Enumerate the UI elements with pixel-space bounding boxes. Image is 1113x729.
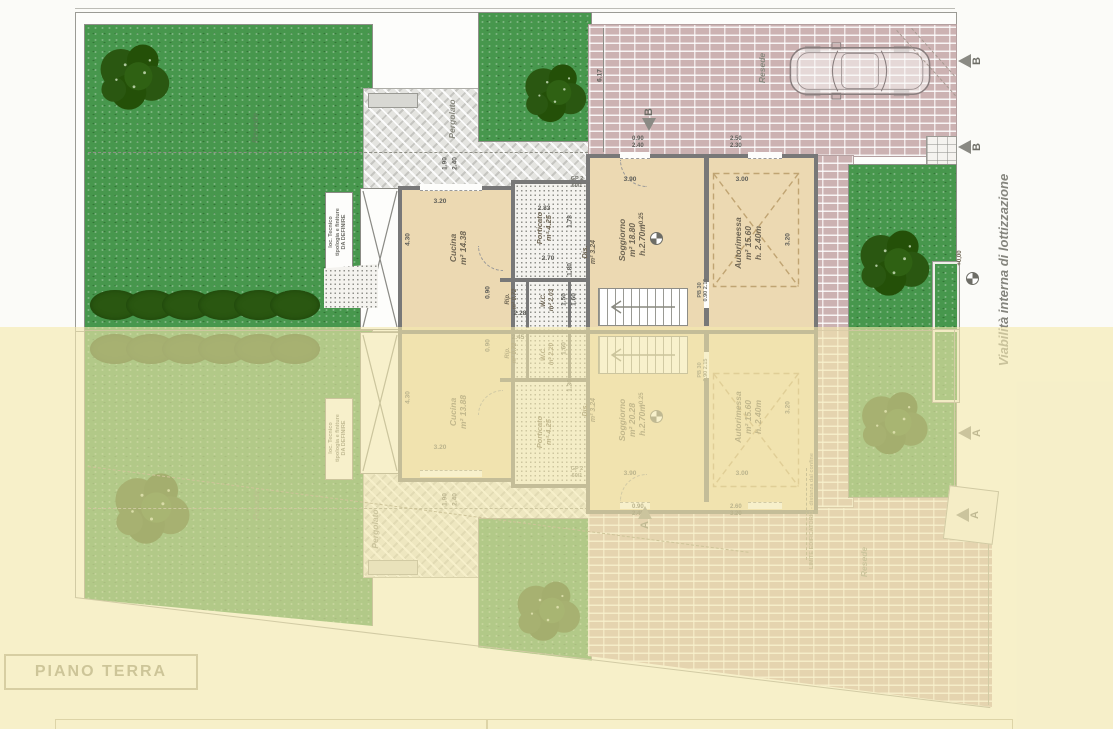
tree-icon — [508, 570, 588, 654]
room-area: m² 2.03 — [548, 289, 556, 311]
room-area: m² 20.28 — [627, 403, 637, 437]
dimension: 2.83 — [532, 205, 556, 212]
door-size: 60/1 — [572, 473, 583, 479]
room-area: m² 4.25 — [545, 419, 554, 445]
dimension: 1.80 — [567, 258, 574, 282]
technical-room-bottom — [360, 332, 400, 474]
pergola-beam — [368, 93, 418, 108]
section-a-marker-icon: A — [958, 426, 981, 440]
room-area: m² 3.24 — [590, 398, 598, 422]
room-label-autorimessa-bottom: Autorimessa m² 15.60 h. 2.40m — [730, 377, 766, 457]
level-zero-benchmark-icon — [966, 272, 979, 285]
section-a-label: A — [639, 521, 651, 529]
dimension-line — [603, 28, 604, 152]
section-arrow-up-icon — [638, 506, 652, 519]
tree-icon — [516, 52, 594, 136]
hedge-row — [90, 290, 320, 320]
dimension: 3.20 — [785, 396, 792, 420]
setback-dashed-line — [88, 152, 588, 153]
dimension-pair: 2.60 3.20 — [730, 504, 742, 518]
room-name: Rip. — [505, 293, 512, 304]
room-area: m² 18.80 — [627, 223, 637, 257]
room-name: Autorimessa — [733, 391, 743, 443]
room-label-cucina-bottom: Cucina m² 13.88 — [442, 372, 474, 452]
level-label: +0.25 — [637, 385, 649, 415]
setback-dashed-line-bottom — [88, 508, 588, 509]
lot-boundary-left-bottom — [75, 330, 76, 597]
viability-label: Viabilità interna di lottizzazione — [995, 80, 1013, 460]
resede-lawn-label: Resede — [245, 98, 265, 158]
lot-boundary-right-bottom — [954, 330, 955, 492]
room-area: m² 0.72 — [512, 289, 519, 310]
section-b-label: B — [971, 57, 983, 65]
dimension: 1.90 — [442, 488, 449, 512]
room-label-cucina: Cucina m² 14.38 — [442, 208, 474, 288]
room-name: Autorimessa — [733, 217, 743, 269]
dimension: 2.40 — [452, 152, 459, 176]
room-label-wc-bottom: W.C. m² 2.20 — [538, 314, 558, 394]
stairs — [598, 288, 688, 326]
room-name: Soggiorno — [617, 399, 627, 442]
bush-icon — [270, 334, 320, 364]
door-tag-pb-bottom: PB 30 0.90 2.15 — [695, 335, 711, 405]
dimension: 2.40 — [632, 143, 644, 150]
room-name: W.C. — [540, 293, 548, 307]
dimension: 3.20 — [428, 198, 452, 205]
room-area: m² 13.88 — [458, 395, 468, 429]
x-brace-icon — [361, 333, 399, 473]
section-a-marker-icon: A — [956, 508, 979, 522]
tree-icon — [88, 34, 180, 122]
dimension: 2.60 — [730, 504, 742, 511]
drawing-sheet: Resede Pergolato Resede 6.17 B loc. Tecn… — [0, 0, 1113, 729]
dimension: 3.20 — [428, 444, 452, 451]
dimension: 4.30 — [405, 386, 412, 410]
dimension: 3.00 — [730, 176, 754, 183]
room-area: m² 0.72 — [512, 343, 519, 364]
dimension: 6.17 — [597, 64, 604, 88]
door-tag-gp: GP 2 60/1 — [564, 176, 590, 189]
dimension: 2.50 — [730, 136, 742, 143]
hedge-row-bottom — [90, 334, 320, 364]
dimension: 0.90 — [485, 334, 492, 358]
level-benchmark-icon — [650, 410, 663, 423]
dimension: 0.90 — [485, 281, 492, 305]
section-a-marker-icon: A — [638, 506, 652, 531]
technical-room — [360, 188, 400, 330]
dimension: 3.90 — [618, 470, 642, 477]
level-benchmark-icon — [650, 232, 663, 245]
dimension: 2.70 — [536, 255, 560, 262]
door-code: GP 2 — [571, 176, 583, 182]
room-label-dis-bottom: Dis. m² 3.24 — [578, 370, 602, 450]
room-height: h. 2.40m — [753, 226, 763, 260]
pergolato-bottom-label: Pergolato — [364, 489, 386, 569]
window-opening — [620, 152, 650, 159]
dimension: 2.45 — [506, 334, 530, 341]
plan-title-box: PIANO TERRA — [4, 654, 198, 690]
lot-boundary-right-lower — [988, 542, 989, 705]
room-label-porticato-bottom: Porticato m² 4.25 — [529, 392, 561, 472]
door-size: 0.90 2.15 — [703, 279, 709, 302]
window-opening — [420, 184, 482, 191]
dimension: 2.40 — [452, 488, 459, 512]
plan-title: PIANO TERRA — [35, 663, 167, 681]
stair-direction-arrow-icon — [603, 345, 683, 365]
dimension: 0.90 — [632, 136, 644, 143]
dimension: 1.90 — [442, 152, 449, 176]
door-size: 60/1 — [572, 183, 583, 189]
loc-line: DA DEFINIRE — [341, 421, 347, 456]
room-area: m² 15.60 — [743, 400, 753, 434]
tree-icon — [852, 382, 936, 466]
dimension: 3.90 — [618, 176, 642, 183]
interior-wall — [568, 332, 571, 378]
dimension: 1.78 — [567, 210, 574, 234]
section-arrow-left-icon — [958, 54, 971, 68]
window-opening — [420, 470, 482, 477]
dimension-pair: 0.90 2.40 — [632, 136, 644, 150]
dimension: 1.60 — [561, 337, 568, 361]
dimension: 4.30 — [405, 228, 412, 252]
dimension: 1.60 — [571, 288, 578, 312]
door-size: 0.90 2.15 — [703, 359, 709, 382]
door-tag-gp-bottom: GP 2 60/1 — [564, 466, 590, 479]
dimension-pair: 2.50 2.30 — [730, 136, 742, 150]
room-area: m² 2.20 — [548, 343, 556, 365]
resede-driveway-label: Resede — [752, 38, 772, 98]
loc-tecnico-label: loc. Tecnico tipologia e finiture DA DEF… — [328, 192, 348, 272]
room-area: m² 15.60 — [743, 226, 753, 260]
section-arrow-left-icon — [958, 140, 971, 154]
room-area: m² 3.24 — [590, 240, 598, 264]
section-b-marker-icon: B — [642, 106, 656, 131]
car-icon — [786, 42, 934, 100]
next-sheet-row — [487, 719, 1013, 729]
dimension: 1.50 — [561, 288, 568, 312]
limite-edificatorio-label: LIMITE EDIFICATORIO - distanza dal confi… — [805, 441, 819, 581]
room-height: h. 2.40m — [753, 400, 763, 434]
room-name: Dis. — [582, 404, 590, 417]
section-b-marker-icon: B — [958, 140, 981, 154]
level-label: +0.25 — [637, 205, 649, 235]
interior-wall — [526, 282, 529, 328]
room-name: Soggiorno — [617, 219, 627, 262]
section-b-label: B — [971, 143, 983, 151]
pergolato-label: Pergolato — [441, 79, 463, 159]
dimension: 3.20 — [785, 228, 792, 252]
loc-line: DA DEFINIRE — [341, 215, 347, 250]
section-a-label: A — [969, 511, 981, 519]
tree-icon — [104, 462, 199, 557]
dimension: 3.20 — [730, 511, 742, 518]
room-name: Cucina — [448, 234, 458, 262]
window-opening — [748, 152, 782, 159]
room-label-dis: Dis. m² 3.24 — [578, 212, 602, 292]
room-label-rip-bottom: Rip. m² 0.72 — [503, 313, 521, 393]
dimension: 2.30 — [730, 143, 742, 150]
loc-tecnico-bottom-label: loc. Tecnico tipologia e finiture DA DEF… — [328, 398, 348, 478]
room-area: m² 14.38 — [458, 231, 468, 265]
dimension: 1.30 — [567, 374, 574, 398]
room-name: Cucina — [448, 398, 458, 426]
door-code: GP 2 — [571, 466, 583, 472]
resede-lawn-bottom-label: Resede — [246, 475, 266, 535]
garden-strip-bottom — [933, 330, 959, 402]
level-zero-label: +0,00 — [955, 243, 967, 273]
room-name: Dis. — [582, 246, 590, 259]
gravel-wedge — [324, 264, 378, 308]
section-a-label: A — [971, 429, 983, 437]
section-b-label: B — [643, 108, 655, 116]
tree-icon — [850, 220, 938, 308]
room-name: Rip. — [505, 347, 512, 358]
section-b-marker-icon: B — [958, 54, 981, 68]
bush-icon — [270, 290, 320, 320]
x-brace-icon — [361, 189, 399, 329]
next-sheet-row — [55, 719, 487, 729]
section-arrow-left-icon — [956, 508, 969, 522]
room-name: W.C. — [540, 347, 548, 361]
window-opening — [748, 502, 782, 509]
north-boundary-line — [75, 8, 955, 9]
section-arrow-left-icon — [958, 426, 971, 440]
stair-direction-arrow-icon — [603, 297, 683, 317]
dimension: 3.00 — [730, 470, 754, 477]
room-label-autorimessa: Autorimessa m² 15.60 h. 2.40m — [730, 203, 766, 283]
resede-bottom-label: Resede — [854, 532, 874, 592]
door-tag-pb: PB 30 0.90 2.15 — [695, 255, 711, 325]
section-arrow-down-icon — [642, 118, 656, 131]
room-area: m² 4.25 — [545, 215, 554, 241]
stairs-bottom — [598, 336, 688, 374]
